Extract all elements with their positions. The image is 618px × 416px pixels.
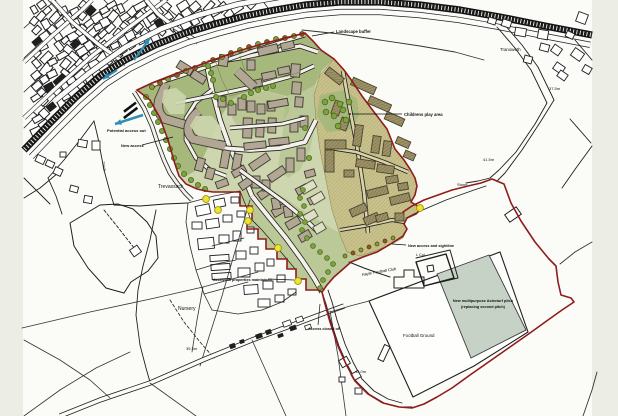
svg-text:New multipurpose Astroturf pit: New multipurpose Astroturf pitch: [453, 299, 514, 303]
svg-text:Tranoweth: Tranoweth: [500, 47, 521, 52]
svg-text:Stone: Stone: [457, 182, 468, 187]
svg-text:(replacing second pitch): (replacing second pitch): [461, 305, 506, 309]
svg-text:New access and sightline: New access and sightline: [408, 244, 454, 248]
svg-text:43.0m: 43.0m: [355, 369, 367, 374]
svg-text:New access: New access: [121, 143, 144, 148]
svg-text:Landscape buffer: Landscape buffer: [336, 29, 371, 34]
svg-text:Trevassack: Trevassack: [158, 184, 184, 190]
svg-text:35.3m: 35.3m: [186, 346, 198, 351]
svg-text:41.5m: 41.5m: [483, 157, 495, 162]
svg-text:Football Ground: Football Ground: [403, 333, 435, 338]
svg-text:Nursery: Nursery: [178, 306, 196, 312]
svg-text:37.5m: 37.5m: [549, 86, 561, 91]
svg-text:Access to properties maintaine: Access to properties maintained: [213, 278, 272, 282]
svg-text:Potential access out: Potential access out: [107, 128, 146, 133]
svg-text:Childrens play area: Childrens play area: [404, 112, 443, 117]
svg-text:Access closed off: Access closed off: [308, 327, 341, 331]
svg-text:L Col: L Col: [416, 253, 425, 257]
